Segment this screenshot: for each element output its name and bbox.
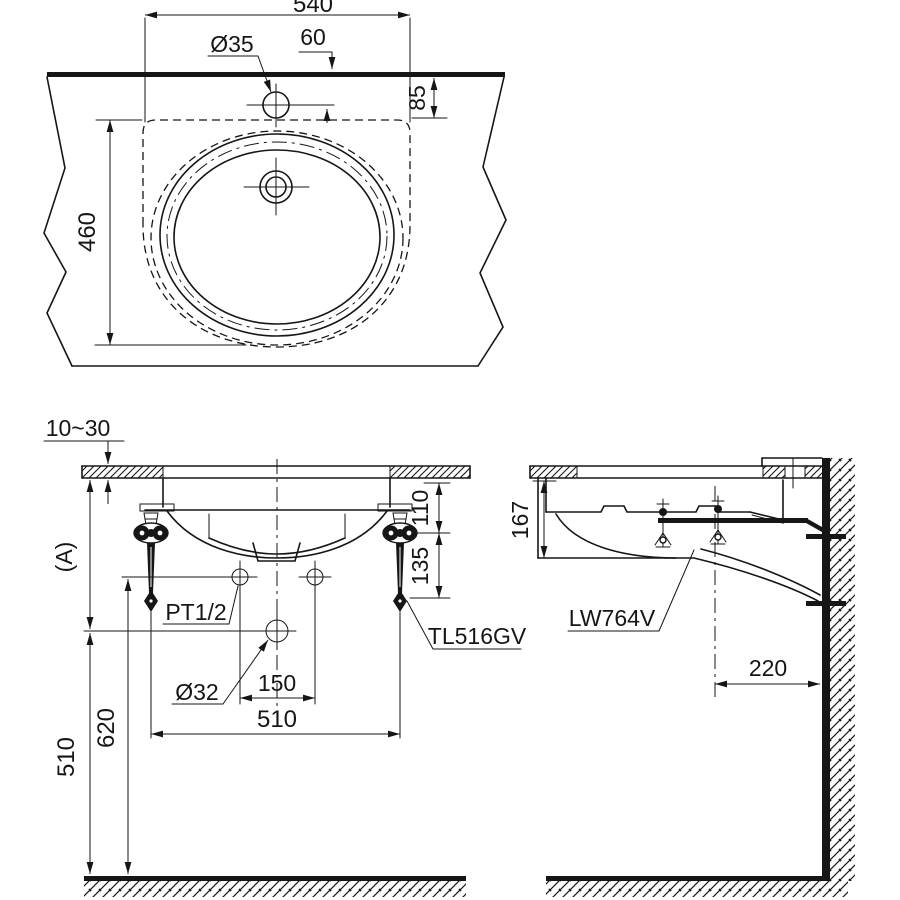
supply-hole-right (299, 561, 331, 593)
wall-anchor-lower (806, 601, 846, 606)
dim-edge-to-cutout: 85 (404, 85, 430, 111)
basin-hidden-rim (151, 131, 403, 345)
dim-drain-to-wall: 220 (749, 655, 787, 681)
dim-faucet-offset: 60 (300, 24, 326, 50)
top-view: 540 Ø35 60 85 460 (44, 0, 506, 366)
front-view: 10~30 (A) 510 620 110 135 PT1/2 TL516GV … (44, 415, 527, 897)
wall-section (806, 458, 855, 881)
side-view: 167 LW764V 220 (507, 458, 855, 897)
label-faucet-model: TL516GV (428, 623, 527, 649)
supply-hole-left (122, 561, 257, 593)
dim-counter-thickness: 10~30 (46, 415, 111, 441)
label-drain-dia: Ø32 (175, 679, 218, 705)
wall-bracket (658, 518, 822, 601)
floor-front (84, 876, 466, 897)
basin-overflow-line (167, 142, 387, 330)
technical-drawing-page: 540 Ø35 60 85 460 (0, 0, 900, 900)
dim-drain-height: 510 (53, 737, 80, 777)
dim-cutout-depth: 460 (74, 212, 101, 252)
break-line-right (478, 77, 506, 366)
dim-basin-depth: 167 (507, 501, 533, 539)
dim-counter-height: (A) (51, 542, 77, 573)
dim-counter-to-valve: 110 (407, 490, 433, 527)
dim-valve-length: 135 (407, 547, 433, 585)
basin-outer-rim (160, 134, 394, 336)
basin-inner-rim (174, 150, 380, 324)
dim-cutout-width: 540 (293, 0, 333, 18)
dim-supply-height: 620 (93, 708, 120, 748)
basin-installation-drawing: 540 Ø35 60 85 460 (0, 0, 900, 900)
floor-side (546, 876, 848, 897)
wall-anchor-upper (806, 534, 846, 539)
break-line-left (44, 77, 72, 366)
counter-cutout-outline (143, 120, 410, 347)
basin-front-outline (140, 478, 412, 561)
dim-valve-spacing: 510 (257, 706, 297, 733)
label-faucet-hole-dia: Ø35 (210, 31, 253, 57)
label-supply-type: PT1/2 (165, 599, 226, 625)
counter-front-edge (47, 72, 505, 77)
label-basin-model: LW764V (569, 605, 656, 631)
drain-hole-top (244, 158, 309, 215)
dim-supply-spacing: 150 (258, 670, 296, 696)
supply-valve-left (134, 513, 168, 621)
